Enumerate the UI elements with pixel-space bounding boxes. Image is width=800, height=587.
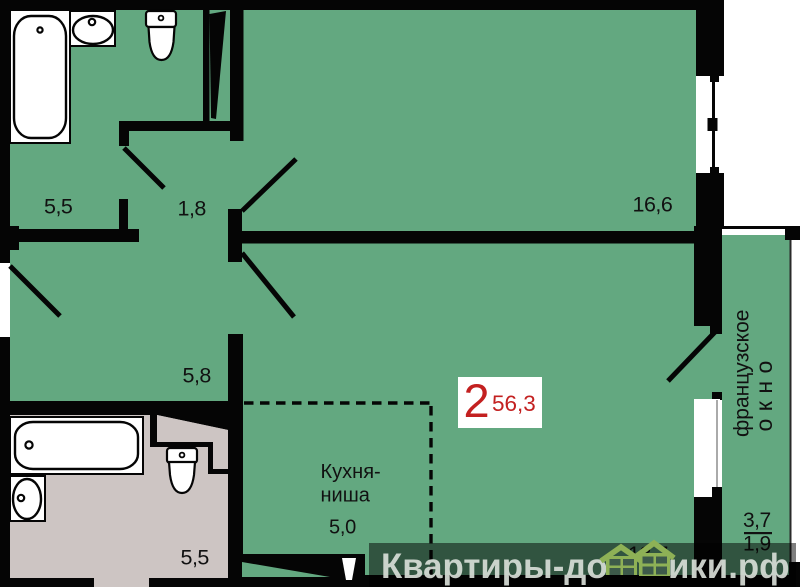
svg-text:16,6: 16,6 — [633, 193, 673, 217]
svg-text:Кухня-: Кухня- — [321, 461, 381, 483]
svg-text:ниша: ниша — [321, 485, 371, 507]
svg-text:5,8: 5,8 — [183, 364, 212, 388]
svg-text:Квартиры-до: Квартиры-до — [381, 547, 608, 586]
svg-text:ики.рф: ики.рф — [668, 547, 790, 586]
svg-text:1,8: 1,8 — [178, 197, 207, 221]
svg-text:5,0: 5,0 — [329, 517, 356, 539]
svg-text:56,3: 56,3 — [492, 391, 536, 416]
svg-text:5,5: 5,5 — [181, 546, 210, 570]
svg-text:2: 2 — [464, 374, 490, 427]
svg-text:3,7: 3,7 — [743, 509, 771, 532]
svg-text:5,5: 5,5 — [44, 194, 73, 218]
svg-text:окно: окно — [751, 353, 777, 431]
